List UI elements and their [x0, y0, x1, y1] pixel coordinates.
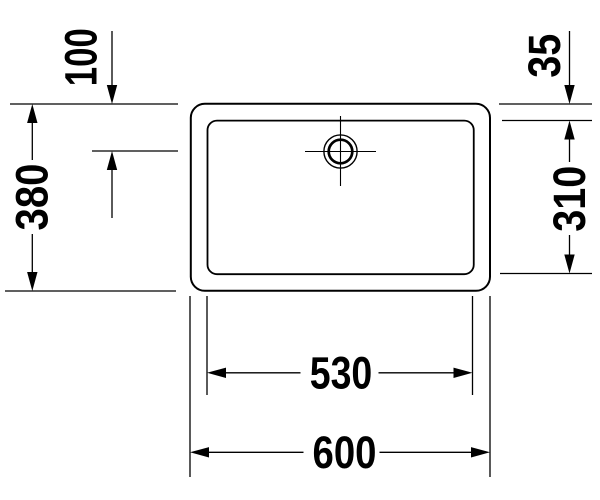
svg-text:380: 380 [7, 164, 58, 231]
svg-text:100: 100 [56, 28, 107, 86]
svg-text:35: 35 [519, 34, 570, 78]
svg-text:310: 310 [544, 166, 595, 232]
svg-text:530: 530 [310, 348, 373, 399]
svg-text:600: 600 [313, 427, 377, 478]
